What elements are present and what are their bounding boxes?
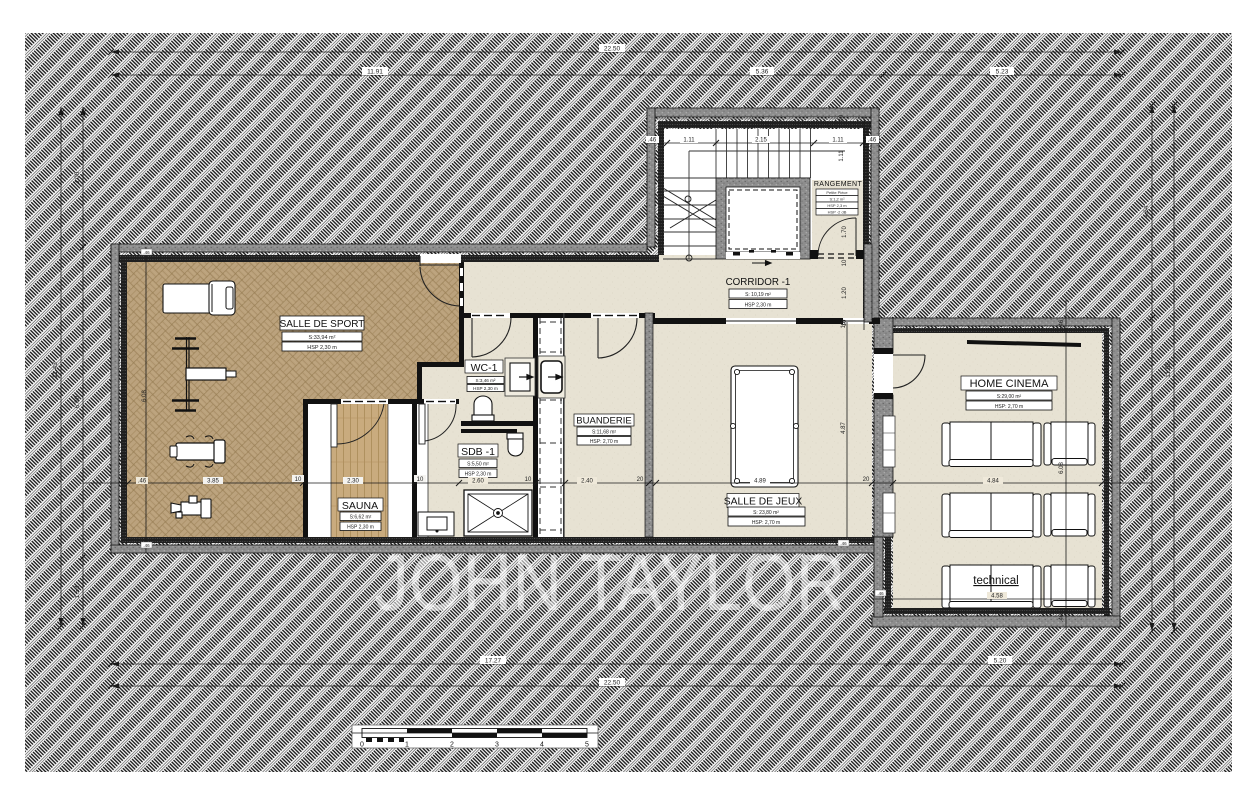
svg-text:.46: .46 — [143, 543, 150, 548]
svg-text:WC-1: WC-1 — [471, 362, 498, 374]
svg-text:5.20: 5.20 — [994, 658, 1007, 665]
svg-text:1.20: 1.20 — [842, 287, 848, 299]
svg-text:RANGEMENT: RANGEMENT — [814, 181, 863, 188]
svg-text:5.36: 5.36 — [756, 69, 769, 76]
svg-text:S: 23,80 m²: S: 23,80 m² — [753, 510, 779, 516]
svg-text:.46: .46 — [1104, 477, 1113, 483]
svg-text:SALLE DE JEUX: SALLE DE JEUX — [724, 497, 803, 508]
svg-text:4.84: 4.84 — [987, 479, 999, 485]
svg-text:S: 10,19 m²: S: 10,19 m² — [745, 292, 771, 298]
svg-text:6.08: 6.08 — [1059, 462, 1065, 474]
svg-text:20: 20 — [863, 477, 870, 483]
svg-text:SAUNA: SAUNA — [342, 500, 378, 512]
svg-text:S:1,2 m²: S:1,2 m² — [829, 197, 845, 202]
svg-text:technical: technical — [973, 575, 1018, 587]
svg-text:6.08: 6.08 — [142, 390, 148, 402]
svg-text:4: 4 — [540, 742, 544, 749]
svg-text:1.11: 1.11 — [683, 138, 695, 144]
svg-text:2.15: 2.15 — [755, 138, 767, 144]
svg-text:HSP: 2,70 m: HSP: 2,70 m — [752, 520, 780, 526]
svg-text:.46: .46 — [138, 479, 147, 485]
svg-text:7.04: 7.04 — [1143, 467, 1150, 480]
svg-text:HSP -2 dB: HSP -2 dB — [828, 210, 847, 215]
svg-text:.40: .40 — [839, 114, 845, 123]
svg-text:HSP 2,30 m: HSP 2,30 m — [465, 472, 492, 478]
svg-text:10: 10 — [525, 477, 532, 483]
svg-text:4.64: 4.64 — [1143, 205, 1150, 218]
svg-text:.46: .46 — [868, 138, 877, 144]
svg-text:2.60: 2.60 — [472, 479, 484, 485]
svg-text:11.91: 11.91 — [367, 69, 383, 76]
svg-text:4.87: 4.87 — [841, 422, 847, 434]
svg-text:1.11: 1.11 — [839, 150, 845, 162]
svg-text:17.27: 17.27 — [485, 658, 502, 665]
svg-text:SALLE DE SPORT: SALLE DE SPORT — [280, 319, 365, 330]
svg-text:1.11: 1.11 — [832, 138, 844, 144]
svg-text:.46: .46 — [1059, 319, 1065, 328]
svg-text:CORRIDOR -1: CORRIDOR -1 — [726, 277, 791, 288]
svg-text:0: 0 — [360, 742, 364, 749]
svg-text:3.85: 3.85 — [207, 479, 219, 485]
svg-text:2.40: 2.40 — [581, 479, 593, 485]
svg-text:3.00: 3.00 — [74, 171, 81, 184]
svg-text:4.58: 4.58 — [991, 594, 1003, 600]
svg-text:HSP 2,3 m: HSP 2,3 m — [827, 203, 847, 208]
svg-text:6.90: 6.90 — [74, 395, 81, 408]
svg-text:HOME CINEMA: HOME CINEMA — [970, 378, 1050, 390]
svg-text:5.23: 5.23 — [996, 69, 1009, 76]
svg-text:5: 5 — [585, 742, 589, 749]
svg-text:1.53: 1.53 — [74, 585, 81, 598]
svg-text:22.50: 22.50 — [604, 46, 621, 53]
svg-text:HSP 2,30 m: HSP 2,30 m — [307, 345, 337, 351]
svg-text:HSP 2,30 m: HSP 2,30 m — [473, 386, 498, 391]
svg-text:S:29,00 m²: S:29,00 m² — [997, 394, 1022, 400]
svg-text:10: 10 — [842, 319, 848, 326]
svg-text:SDB -1: SDB -1 — [461, 446, 495, 458]
svg-text:S:5,50 m²: S:5,50 m² — [467, 462, 489, 468]
svg-text:20: 20 — [637, 477, 644, 483]
svg-text:10: 10 — [417, 477, 424, 483]
svg-text:S:11,68 m²: S:11,68 m² — [592, 430, 616, 436]
svg-text:Petite Pièce: Petite Pièce — [826, 190, 848, 195]
svg-text:4.89: 4.89 — [754, 479, 766, 485]
svg-text:1.70: 1.70 — [842, 226, 848, 238]
svg-text:S:3,46 m²: S:3,46 m² — [476, 378, 496, 383]
svg-text:HSP 2,30 m: HSP 2,30 m — [347, 525, 374, 531]
svg-text:S:6,62 m²: S:6,62 m² — [350, 515, 372, 521]
svg-text:10: 10 — [842, 259, 848, 266]
svg-text:.46: .46 — [648, 138, 657, 144]
svg-text:2.30: 2.30 — [347, 479, 359, 485]
svg-text:JOHN TAYLOR: JOHN TAYLOR — [375, 538, 846, 627]
svg-text:.46: .46 — [877, 591, 884, 596]
svg-text:22.50: 22.50 — [604, 680, 621, 687]
svg-text:1: 1 — [405, 742, 409, 749]
svg-text:2: 2 — [450, 742, 454, 749]
svg-text:HSP: 2,70 m: HSP: 2,70 m — [590, 439, 618, 445]
svg-text:HSP: 2,70 m: HSP: 2,70 m — [995, 404, 1023, 410]
svg-text:11.68: 11.68 — [1165, 362, 1172, 378]
svg-text:HSP 2,30 m: HSP 2,30 m — [745, 303, 772, 309]
svg-text:.46: .46 — [1059, 613, 1065, 622]
svg-text:.46: .46 — [143, 250, 150, 255]
svg-text:11.43: 11.43 — [52, 362, 59, 378]
svg-text:S:33,94 m²: S:33,94 m² — [309, 335, 336, 341]
svg-text:10: 10 — [295, 477, 302, 483]
svg-text:BUANDERIE: BUANDERIE — [576, 416, 631, 427]
svg-text:3: 3 — [495, 742, 499, 749]
